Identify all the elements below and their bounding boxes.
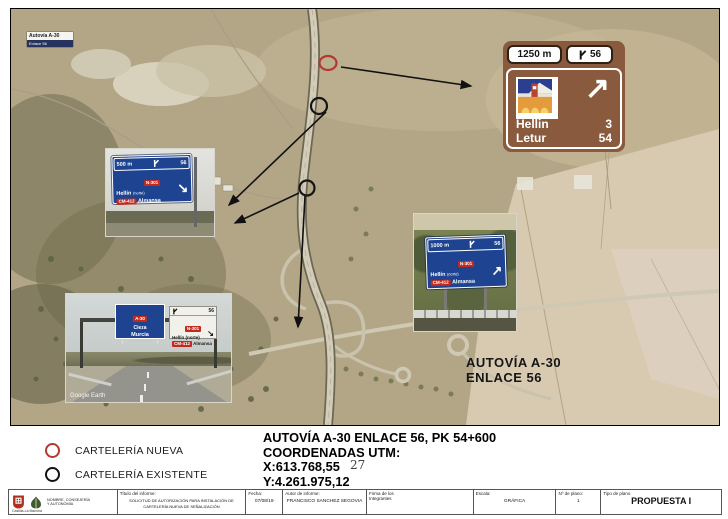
lane-arrow-icon: ↓ <box>156 339 159 346</box>
report-date: 07/08/19 <box>248 499 280 505</box>
map-corner-badge: Autovía A-30 Enlace 56 <box>27 32 73 47</box>
route-badge: CM-412 <box>172 341 192 347</box>
plan-number: 1 <box>558 499 598 505</box>
photo-existing-sign-1000m: 1000 m 56 N-301 Hellín (norte) CM-412 Al… <box>413 213 517 332</box>
lane-arrow-icon: ↓ <box>121 339 124 346</box>
title-block-author-cell: Autor de informe: FRANCISCO SANCHEZ SEGO… <box>283 490 367 514</box>
plan-sheet: Autovía A-30 Enlace 56 AUTOVÍA A-30 ENLA… <box>0 0 728 519</box>
blue-sign-500m: 500 m 56 N-301 Hellín (norte) CM-412 Alm… <box>111 154 192 204</box>
logo-caption: Castilla-La Mancha <box>12 509 42 513</box>
blue-sign-1000m: 1000 m 56 N-301 Hellín (norte) CM-412 Al… <box>425 235 507 290</box>
direction-arrow-icon: ↘ <box>177 181 188 194</box>
sign-pole <box>484 288 487 312</box>
route-badge: A-30 <box>133 316 147 322</box>
exit-icon <box>172 308 178 315</box>
title-block-plan-type-cell: Tipo de plano PROPUESTA I <box>601 490 721 514</box>
title-block: NOMBRE, CONSEJERÍA Y AUTONOMÍA Castilla-… <box>8 489 722 515</box>
route-badge: N-301 <box>144 180 160 186</box>
map-corner-badge-subtitle: Enlace 56 <box>27 40 73 47</box>
legend-existing-label: CARTELERÍA EXISTENTE <box>75 469 207 481</box>
secondary-emblem-icon <box>29 495 43 510</box>
proposed-sign-exit: 56 <box>566 45 613 64</box>
photo-existing-sign-500m: 500 m 56 N-301 Hellín (norte) CM-412 Alm… <box>105 148 215 237</box>
plan-type: PROPUESTA I <box>603 498 719 504</box>
direction-arrow-icon: ↗ <box>491 264 502 277</box>
gantry-blue-panel: A-30 Cieza Murcia ↓ ↓ <box>115 304 165 339</box>
town-pictogram-icon <box>516 77 558 119</box>
page-number: 27 <box>350 458 365 472</box>
photo-existing-gantry: A-30 Cieza Murcia ↓ ↓ 56 N-301 Hellín (n… <box>65 293 232 403</box>
legend-existing-circle-icon <box>45 467 60 482</box>
exit-icon <box>468 240 475 249</box>
title-block-signature-cell: Firma de los Integrantes <box>367 490 474 514</box>
note-title: AUTOVÍA A-30 ENLACE 56, PK 54+600 <box>263 431 496 446</box>
exit-icon <box>153 159 160 168</box>
title-block-logos-cell: NOMBRE, CONSEJERÍA Y AUTONOMÍA Castilla-… <box>9 490 118 514</box>
map-area-label: AUTOVÍA A-30 ENLACE 56 <box>466 355 561 385</box>
route-badge: CM-412 <box>431 280 451 287</box>
exit-icon <box>578 49 587 61</box>
route-badge: N-301 <box>458 261 474 268</box>
sign-pole <box>194 157 197 227</box>
guardrail <box>414 310 517 318</box>
title-block-plan-number-cell: Nº de plano: 1 <box>556 490 601 514</box>
google-earth-watermark: Google Earth <box>70 393 105 399</box>
proposed-sign-panel: ↗ Hellin 3 Letur 54 <box>506 68 622 149</box>
report-title: SOLICITUD DE AUTORIZACIÓN PARA INSTALACI… <box>120 498 244 510</box>
gantry-exit-panel: 56 N-301 Hellín (norte) CM-412 Almansa ↘ <box>169 306 217 339</box>
direction-arrow-icon: ↗ <box>585 70 610 108</box>
proposed-sign-row: Letur 54 <box>516 132 612 145</box>
legend-new-circle-icon <box>45 443 60 458</box>
proposed-sign: 1250 m 56 ↗ Hellin <box>503 41 625 152</box>
castilla-la-mancha-logo-icon <box>12 494 25 510</box>
title-block-scale-cell: Escala: GRÁFICA <box>474 490 557 514</box>
report-author: FRANCISCO SANCHEZ SEGOVIA <box>285 499 364 505</box>
location-note: AUTOVÍA A-30 ENLACE 56, PK 54+600 COORDE… <box>263 431 496 489</box>
organization-caption: NOMBRE, CONSEJERÍA Y AUTONOMÍA <box>47 498 93 507</box>
direction-arrow-icon: ↘ <box>207 329 214 338</box>
title-block-report-title-cell: Título del informe: SOLICITUD DE AUTORIZ… <box>118 490 247 514</box>
gantry-post <box>80 318 83 368</box>
scale-value: GRÁFICA <box>476 499 554 505</box>
proposed-sign-row: Hellin 3 <box>516 118 612 131</box>
legend-new-label: CARTELERÍA NUEVA <box>75 445 183 457</box>
title-block-date-cell: Fecha: 07/08/19 <box>246 490 283 514</box>
proposed-sign-distance: 1250 m <box>507 45 562 64</box>
map-corner-badge-title: Autovía A-30 <box>27 32 73 40</box>
route-badge: N-301 <box>185 326 201 332</box>
sign-pole <box>444 288 447 312</box>
route-badge: CM-412 <box>117 198 137 205</box>
